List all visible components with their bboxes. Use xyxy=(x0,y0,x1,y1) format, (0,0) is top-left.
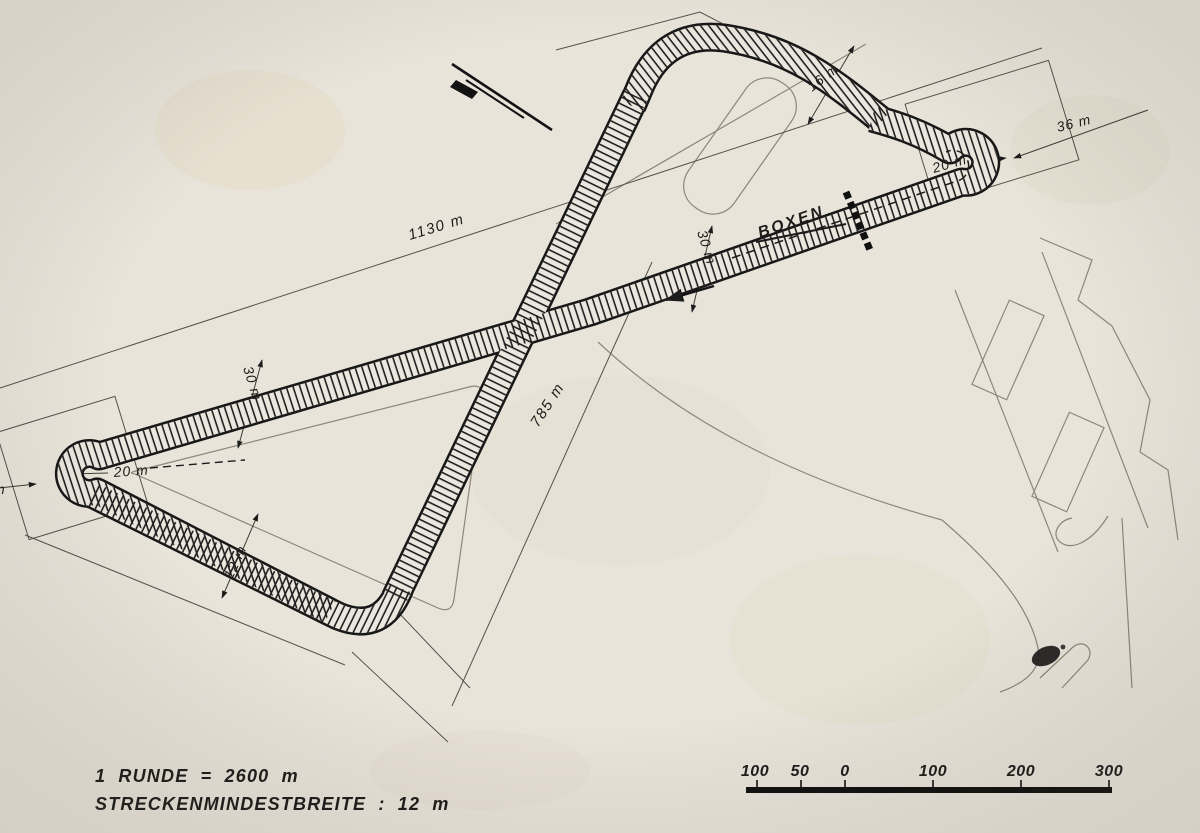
track-plan-drawing: 1130 m 785 m 30 m 30 m 16 m 36 m 20 m 20… xyxy=(0,0,1200,833)
track-plan-page: 1130 m 785 m 30 m 30 m 16 m 36 m 20 m 20… xyxy=(0,0,1200,833)
vignette-overlay xyxy=(0,0,1200,833)
